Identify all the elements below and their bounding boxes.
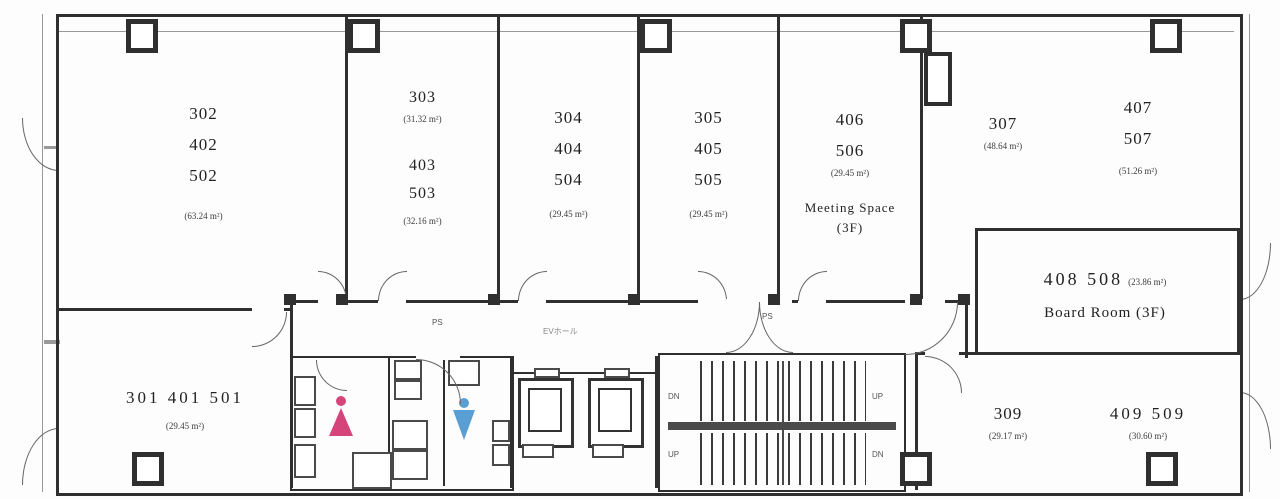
room-label-301: 301 401 501 (29.45 m²) xyxy=(78,382,292,433)
room-number: 408 508 xyxy=(1044,269,1124,289)
pillar xyxy=(132,452,164,486)
pipe-shaft-label: PS xyxy=(432,318,443,327)
wall-cap xyxy=(488,294,500,305)
stair-direction-label: UP xyxy=(872,392,883,401)
room-label-309: 309 (29.17 m²) xyxy=(958,398,1058,443)
toilet-fixture xyxy=(294,444,316,478)
room-area: (29.17 m²) xyxy=(958,429,1058,443)
room-number: 307 xyxy=(948,108,1058,139)
room-number: 502 xyxy=(62,160,345,191)
urinal-fixture xyxy=(492,420,510,442)
exterior-door-arc xyxy=(22,428,59,485)
room-number: 505 xyxy=(640,164,777,195)
wall-cap xyxy=(768,294,780,305)
stair-direction-label: UP xyxy=(668,450,679,459)
room-label-407: 407 507 (51.26 m²) xyxy=(1078,92,1198,178)
room-area: (29.45 m²) xyxy=(500,207,637,221)
room-label-408-board-room: 408 508 (23.86 m²) Board Room (3F) xyxy=(990,264,1220,323)
room-label-406: 406 506 (29.45 m²) Meeting Space (3F) xyxy=(780,104,920,238)
wall-cap xyxy=(910,294,922,305)
room-area: (32.16 m²) xyxy=(348,214,497,228)
wall-309-top xyxy=(915,352,1237,355)
men-restroom-icon xyxy=(452,398,476,440)
room-number: 303 xyxy=(348,84,497,112)
room-number: 304 xyxy=(500,102,637,133)
room-number: 503 xyxy=(348,180,497,208)
toilet-stall xyxy=(392,420,428,450)
wall-cap xyxy=(958,294,970,305)
toilet-fixture xyxy=(294,376,316,406)
elevator-counterweight xyxy=(592,444,624,458)
pillar xyxy=(900,452,932,486)
room-number: 405 xyxy=(640,133,777,164)
exterior-door-arc xyxy=(1240,392,1271,449)
stair-center-rail xyxy=(782,361,784,485)
icon-body xyxy=(329,408,353,436)
room-area: (23.86 m²) xyxy=(1128,277,1166,287)
toilet-stall xyxy=(392,450,428,480)
room-floor-label: (3F) xyxy=(780,218,920,238)
room-area: (48.64 m²) xyxy=(948,139,1058,153)
pipe-shaft-label: PS xyxy=(762,312,773,321)
utility-room xyxy=(352,452,392,489)
room-number: 301 401 501 xyxy=(78,382,292,413)
corridor-east-wall xyxy=(965,300,968,358)
floor-plan: DN UP UP DN 302 402 xyxy=(0,0,1280,499)
wall-cap xyxy=(284,294,296,305)
balcony-line-left xyxy=(42,14,43,492)
elevator-counterweight xyxy=(522,444,554,458)
exterior-door-arc xyxy=(1240,243,1271,300)
room-number: 302 xyxy=(62,98,345,129)
room-label-304: 304 404 504 (29.45 m²) xyxy=(500,102,637,221)
icon-head xyxy=(336,396,346,406)
room-use-label: Board Room (3F) xyxy=(990,303,1220,323)
room-number: 402 xyxy=(62,129,345,160)
room-number: 507 xyxy=(1078,123,1198,154)
room-label-307: 307 (48.64 m²) xyxy=(948,108,1058,153)
toilet-fixture xyxy=(294,408,316,438)
room-number: 403 xyxy=(348,152,497,180)
pillar xyxy=(1150,19,1182,53)
room-number: 406 xyxy=(780,104,920,135)
room-number: 506 xyxy=(780,135,920,166)
pillar xyxy=(900,19,932,53)
room-area: (29.45 m²) xyxy=(640,207,777,221)
wall xyxy=(920,17,923,303)
room-area: (30.60 m²) xyxy=(1078,429,1218,443)
pillar xyxy=(640,19,672,53)
room-label-305: 305 405 505 (29.45 m²) xyxy=(640,102,777,221)
pillar xyxy=(348,19,380,53)
room-label-303: 303 (31.32 m²) 403 503 (32.16 m²) xyxy=(348,84,497,228)
urinal-fixture xyxy=(492,444,510,466)
duct-shaft xyxy=(924,52,952,106)
women-restroom-icon xyxy=(328,396,354,436)
room-number: 309 xyxy=(958,398,1058,429)
room-area: (31.32 m²) xyxy=(348,112,497,126)
room-area: (63.24 m²) xyxy=(62,209,345,223)
elevator-door xyxy=(604,368,630,378)
room-area: (51.26 m²) xyxy=(1078,164,1198,178)
icon-body xyxy=(453,410,475,440)
room-area: (29.45 m²) xyxy=(780,166,920,180)
room-number: 409 509 xyxy=(1078,398,1218,429)
room-number: 407 xyxy=(1078,92,1198,123)
elevator-car-inner xyxy=(528,388,562,432)
room-number: 504 xyxy=(500,164,637,195)
room-number: 404 xyxy=(500,133,637,164)
room-use-label: Meeting Space xyxy=(780,198,920,218)
room-area: (29.45 m²) xyxy=(78,419,292,433)
exterior-door-arc xyxy=(22,118,59,171)
ev-hall-label: EVホール xyxy=(543,326,578,337)
room-label-302: 302 402 502 (63.24 m²) xyxy=(62,98,345,223)
stair-direction-label: DN xyxy=(668,392,680,401)
room-label-409: 409 509 (30.60 m²) xyxy=(1078,398,1218,443)
elevator-car-inner xyxy=(598,388,632,432)
pillar xyxy=(126,19,158,53)
wall-cap xyxy=(336,294,348,305)
room-number: 305 xyxy=(640,102,777,133)
pillar xyxy=(1146,452,1178,486)
elevator-shaft-wall xyxy=(510,356,513,488)
elevator-door xyxy=(534,368,560,378)
wall-cap xyxy=(628,294,640,305)
stair-direction-label: DN xyxy=(872,450,884,459)
